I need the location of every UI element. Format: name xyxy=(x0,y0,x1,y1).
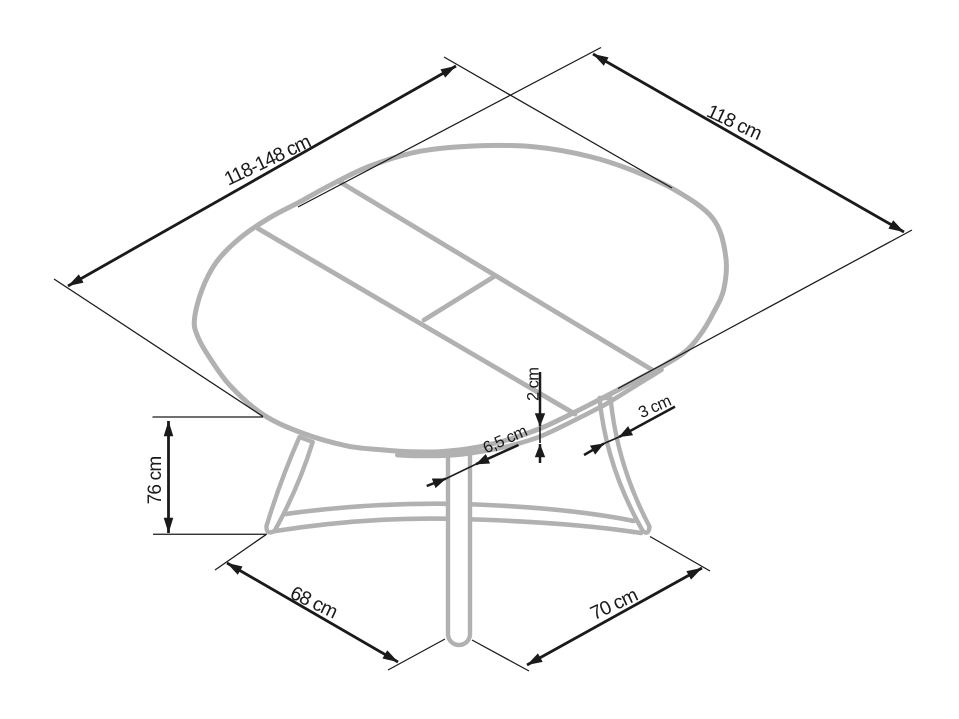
svg-text:70 cm: 70 cm xyxy=(587,584,641,625)
svg-text:2 cm: 2 cm xyxy=(524,368,542,401)
svg-text:68 cm: 68 cm xyxy=(287,582,341,623)
svg-text:118-148 cm: 118-148 cm xyxy=(221,131,314,191)
svg-text:76 cm: 76 cm xyxy=(145,457,166,505)
svg-text:118 cm: 118 cm xyxy=(703,100,765,144)
